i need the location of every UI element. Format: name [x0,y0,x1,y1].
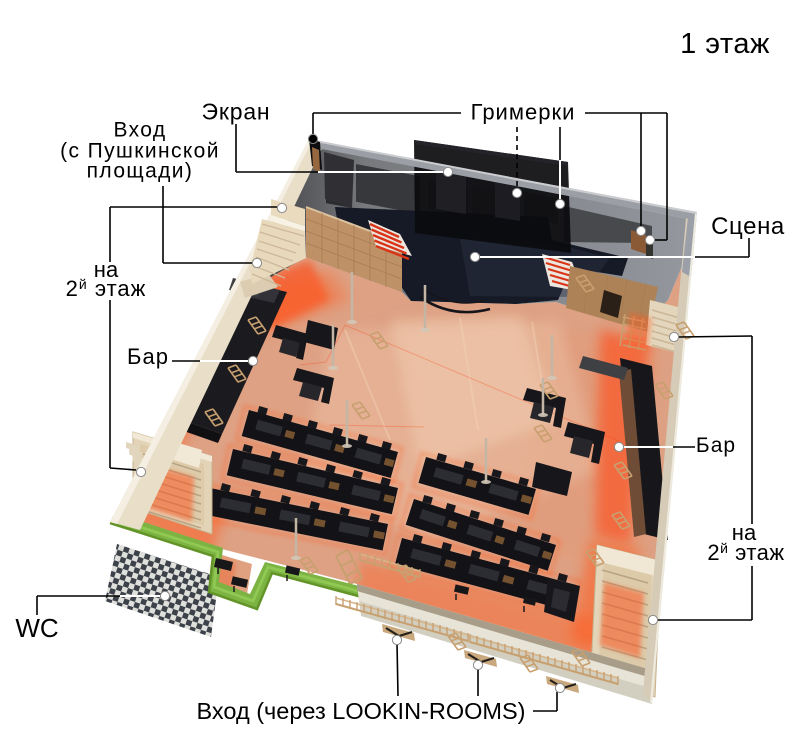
svg-text:1 этаж: 1 этаж [680,28,770,60]
svg-text:2й этаж: 2й этаж [707,540,784,565]
svg-text:Вход (через LOOKIN-ROOMS): Вход (через LOOKIN-ROOMS) [197,698,526,724]
svg-text:Бар: Бар [127,344,169,369]
svg-text:Сцена: Сцена [711,213,785,240]
svg-text:WC: WC [15,613,58,643]
svg-text:Бар: Бар [696,434,736,457]
svg-text:Вход: Вход [113,119,166,142]
svg-text:Гримерки: Гримерки [471,100,576,125]
svg-text:Экран: Экран [202,99,271,125]
svg-text:площади): площади) [87,160,194,183]
svg-text:2й этаж: 2й этаж [66,276,147,301]
